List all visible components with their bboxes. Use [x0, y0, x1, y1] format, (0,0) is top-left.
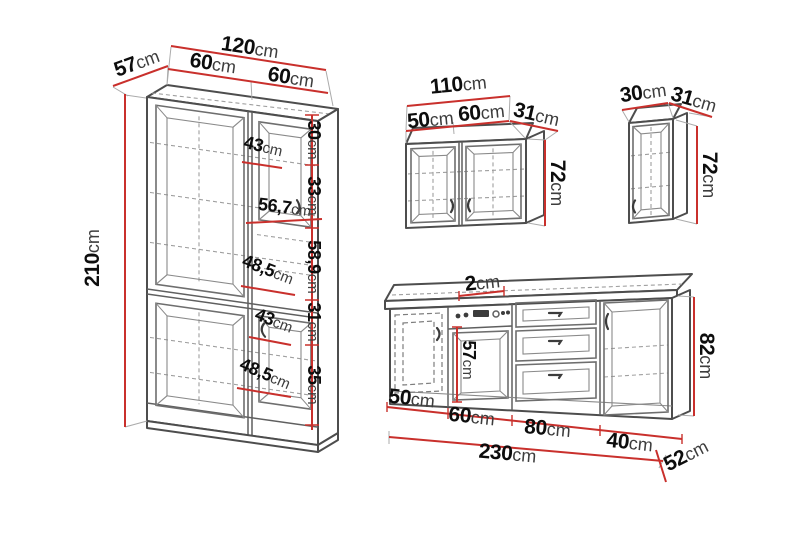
dim-tall-height: 210cm [81, 229, 104, 287]
dim-base-height: 82cm [695, 333, 718, 380]
dim-wd-height: 72cm [546, 160, 569, 207]
base-side-face [672, 290, 690, 419]
dim-ws-height: 72cm [698, 152, 721, 199]
wall-single-front-face [629, 119, 673, 223]
oven-knob [464, 313, 469, 318]
oven-knob [506, 311, 510, 315]
oven-knob [456, 314, 461, 319]
oven-knob [501, 311, 505, 315]
wall-double-front-face [406, 139, 526, 228]
wall-single-side-face [673, 113, 687, 219]
dim-base-oven-niche: 57cm [459, 340, 479, 379]
diagram-canvas: 120cm 57cm 60cm 60cm 210cm 30cm 33cm 56,… [0, 0, 800, 533]
dim-tall-seg5: 35cm [304, 365, 324, 404]
dim-tall-seg3: 58,9cm [304, 240, 324, 293]
dim-tall-seg1: 30cm [304, 120, 324, 159]
dim-tall-seg4: 31cm [304, 302, 324, 341]
wall-cabinet-double-drawing [406, 123, 544, 228]
wall-cabinet-single-drawing [629, 104, 687, 223]
oven-display [473, 310, 489, 317]
wall-double-side-face [526, 131, 544, 223]
kitchen-dimension-diagram: 120cm 57cm 60cm 60cm 210cm 30cm 33cm 56,… [0, 0, 800, 533]
